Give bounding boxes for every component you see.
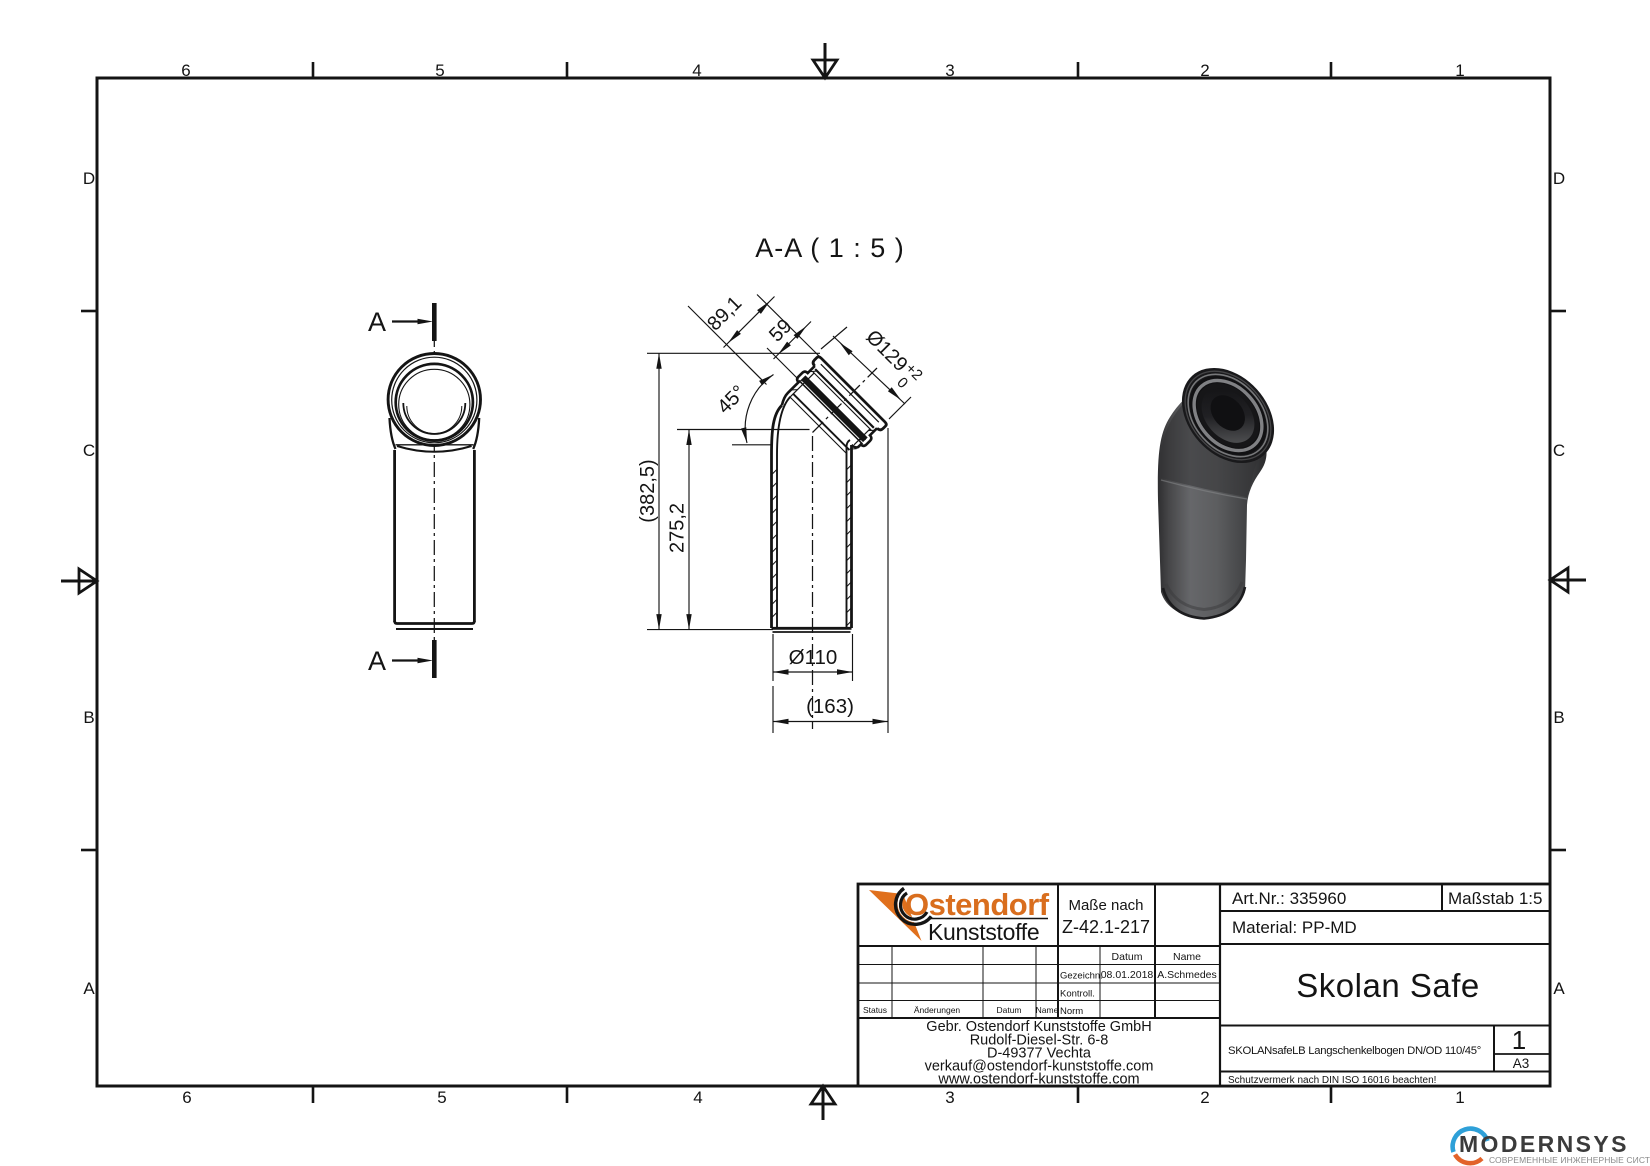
svg-text:Norm: Norm	[1060, 1006, 1083, 1017]
svg-text:C: C	[1553, 441, 1565, 460]
svg-text:1: 1	[1455, 61, 1464, 80]
svg-text:Status: Status	[863, 1005, 887, 1015]
svg-text:Ø110: Ø110	[789, 646, 838, 669]
svg-text:Art.Nr.: 335960: Art.Nr.: 335960	[1232, 889, 1346, 908]
svg-text:275,2: 275,2	[667, 503, 689, 553]
svg-text:A.Schmedes: A.Schmedes	[1157, 969, 1217, 981]
svg-text:1: 1	[1512, 1025, 1526, 1055]
svg-text:A-A ( 1 : 5 ): A-A ( 1 : 5 )	[755, 233, 905, 263]
svg-text:D: D	[83, 169, 95, 188]
svg-text:C: C	[83, 441, 95, 460]
svg-text:Datum: Datum	[996, 1005, 1021, 1015]
svg-text:3: 3	[945, 1088, 954, 1107]
svg-text:A3: A3	[1513, 1056, 1530, 1071]
svg-text:4: 4	[693, 1088, 702, 1107]
svg-text:Änderungen: Änderungen	[914, 1005, 961, 1015]
svg-text:Z-42.1-217: Z-42.1-217	[1062, 917, 1150, 937]
svg-text:Schutzvermerk nach DIN ISO 160: Schutzvermerk nach DIN ISO 16016 beachte…	[1228, 1075, 1436, 1086]
svg-text:B: B	[83, 708, 94, 727]
svg-text:5: 5	[435, 61, 444, 80]
svg-text:Maßstab 1:5: Maßstab 1:5	[1448, 889, 1543, 908]
svg-text:5: 5	[437, 1088, 446, 1107]
svg-text:Name: Name	[1173, 951, 1201, 963]
svg-text:СОВРЕМЕННЫЕ ИНЖЕНЕРНЫЕ СИСТЕМЫ: СОВРЕМЕННЫЕ ИНЖЕНЕРНЫЕ СИСТЕМЫ	[1489, 1155, 1650, 1165]
svg-text:D: D	[1553, 169, 1565, 188]
svg-text:Kontroll.: Kontroll.	[1060, 989, 1095, 1000]
svg-text:2: 2	[1200, 1088, 1209, 1107]
svg-text:A: A	[1553, 979, 1565, 998]
svg-text:A: A	[368, 307, 386, 337]
svg-text:(163): (163)	[806, 695, 854, 718]
svg-text:08.01.2018: 08.01.2018	[1101, 969, 1154, 981]
svg-text:Maße nach: Maße nach	[1068, 897, 1143, 914]
svg-text:3: 3	[945, 61, 954, 80]
svg-text:B: B	[1553, 708, 1564, 727]
svg-text:(382,5): (382,5)	[637, 459, 659, 522]
svg-text:Skolan Safe: Skolan Safe	[1296, 967, 1479, 1004]
svg-text:Kunststoffe: Kunststoffe	[928, 919, 1039, 945]
svg-text:1: 1	[1455, 1088, 1464, 1107]
svg-text:Material: PP-MD: Material: PP-MD	[1232, 918, 1357, 937]
svg-text:MODERNSYS: MODERNSYS	[1459, 1131, 1629, 1157]
svg-text:Ostendorf: Ostendorf	[905, 887, 1050, 922]
svg-text:6: 6	[182, 1088, 191, 1107]
svg-text:A: A	[83, 979, 95, 998]
svg-text:www.ostendorf-kunststoffe.com: www.ostendorf-kunststoffe.com	[937, 1072, 1139, 1088]
svg-text:Datum: Datum	[1112, 951, 1143, 963]
svg-text:4: 4	[692, 61, 701, 80]
svg-text:2: 2	[1200, 61, 1209, 80]
svg-text:6: 6	[181, 61, 190, 80]
svg-text:Gezeichn.: Gezeichn.	[1060, 971, 1103, 982]
svg-text:Name: Name	[1036, 1005, 1059, 1015]
svg-text:SKOLANsafeLB Langschenkelbogen: SKOLANsafeLB Langschenkelbogen DN/OD 110…	[1228, 1045, 1481, 1057]
svg-text:A: A	[368, 646, 386, 676]
